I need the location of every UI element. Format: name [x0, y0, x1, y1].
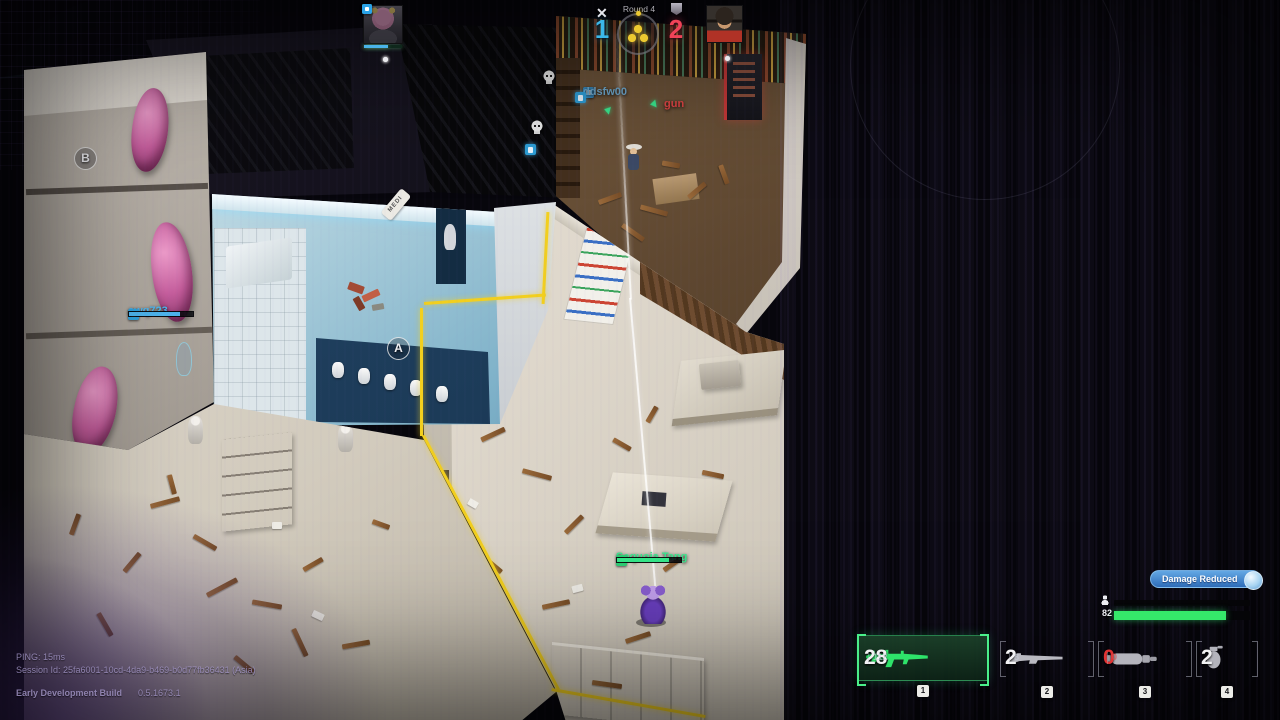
- enemy-portrait-5[interactable]: [706, 5, 743, 43]
- weapon-slot-1[interactable]: 281121: [858, 635, 988, 681]
- level-badge: [362, 4, 372, 14]
- reserve-ammo: 8: [1009, 652, 1019, 664]
- buff-badge: Damage Reduced: [1150, 570, 1261, 588]
- objective-timer-icon: [617, 13, 659, 55]
- hotkey-label: 1: [917, 685, 929, 697]
- weapon-bar: 28112128200324: [858, 633, 1268, 703]
- hotkey-label: 4: [1221, 686, 1233, 698]
- ally-score: 1: [590, 14, 614, 45]
- armor-person-icon: [1101, 595, 1109, 605]
- round-pip: [725, 56, 730, 61]
- round-pip: [383, 57, 388, 62]
- build-label: Early Development Build: [16, 688, 122, 698]
- hotkey-label: 2: [1041, 686, 1053, 698]
- health-value: 82: [1094, 608, 1112, 618]
- debug-line: PING: 15ms: [16, 651, 436, 664]
- health-bar: [1114, 611, 1250, 620]
- debug-info: PING: 15msSession Id: 25fa6001-10cd-4da9…: [16, 651, 436, 677]
- reserve-ammo: 0: [1107, 652, 1117, 664]
- reserve-ammo: 112: [868, 652, 888, 664]
- hp-bar: [364, 45, 402, 48]
- debug-line: Session Id: 25fa6001-10cd-4da9-b469-b0d7…: [16, 664, 436, 677]
- game-viewport: MEDI ddsfw00gunawq723Sequoia TangBA ✕ Ro…: [0, 0, 1280, 720]
- scanline-stripes-faint: [0, 0, 1280, 720]
- shield-bar: [1114, 600, 1250, 606]
- weapon-slot-2[interactable]: 282: [1000, 635, 1094, 681]
- weapon-slot-3[interactable]: 003: [1098, 635, 1192, 681]
- build-version: 0.5.1673.1: [138, 688, 181, 698]
- hp-fill: [364, 45, 388, 48]
- ammo-count: 2: [1201, 646, 1213, 670]
- weapon-slot-4[interactable]: 24: [1196, 635, 1258, 681]
- hotkey-label: 3: [1139, 686, 1151, 698]
- ally-portrait-5[interactable]: [363, 5, 403, 44]
- health-fill: [1114, 611, 1226, 620]
- portrait-image: [707, 6, 742, 42]
- build-info: Early Development Build 0.5.1673.1: [16, 688, 181, 698]
- enemy-score: 2: [664, 14, 688, 45]
